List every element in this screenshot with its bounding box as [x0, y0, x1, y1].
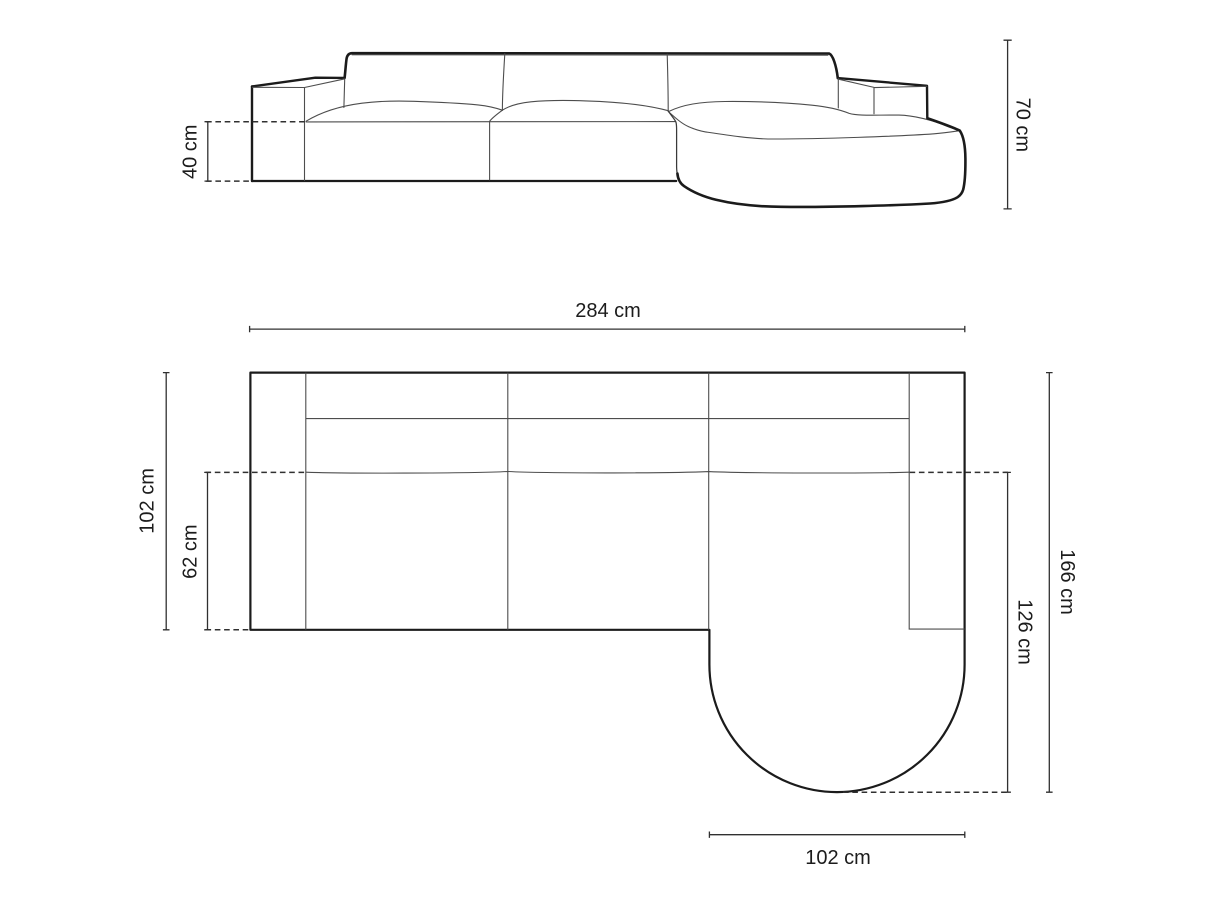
svg-text:126 cm: 126 cm	[1014, 599, 1036, 665]
svg-text:284 cm: 284 cm	[575, 300, 641, 322]
svg-text:62 cm: 62 cm	[179, 524, 201, 578]
svg-text:102 cm: 102 cm	[805, 847, 871, 869]
svg-text:40 cm: 40 cm	[179, 125, 201, 179]
svg-text:166 cm: 166 cm	[1056, 549, 1078, 615]
svg-text:102 cm: 102 cm	[137, 468, 159, 534]
svg-text:70 cm: 70 cm	[1012, 98, 1034, 152]
